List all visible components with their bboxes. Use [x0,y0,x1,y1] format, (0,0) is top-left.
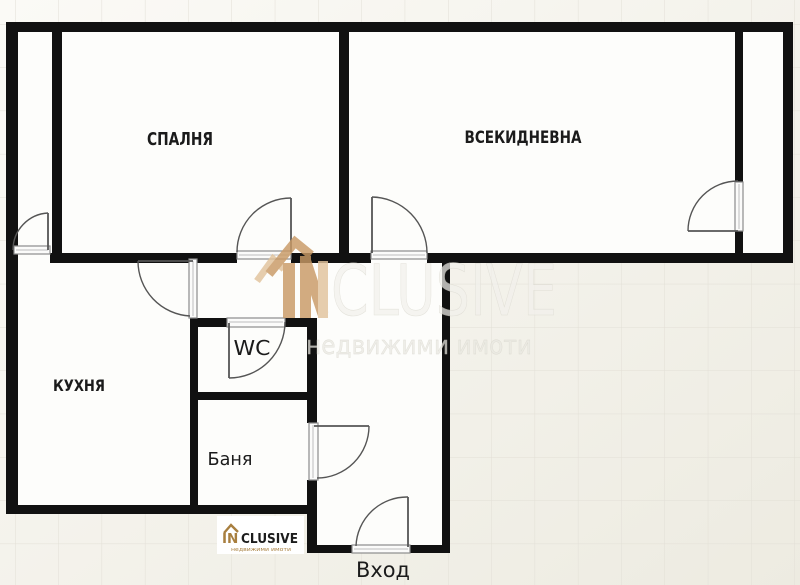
wall-hall-bottom-right [410,545,450,553]
wall-hall-bottom-left [307,545,352,553]
footer-logo: IN CLUSIVE недвижими имоти [217,516,304,554]
floor-plan-svg: CLUSIVE недвижими имоти СПАЛНЯ ВСЕКИДНЕВ… [0,0,800,585]
watermark-letter-i [283,263,295,318]
footer-logo-brand-rest: CLUSIVE [241,531,298,547]
wall-wc-top-left [190,318,227,327]
room-label-bathroom: Баня [208,449,253,470]
wall-bedroom-living-divider [339,30,349,256]
room-label-living-room: ВСЕКИДНЕВНА [465,128,583,148]
wall-wc-bath-divider [190,392,317,400]
wall-main-h-seg1 [6,253,14,263]
footer-logo-brand-prefix: IN [222,531,238,547]
wall-living-right-upper [735,30,743,182]
wall-right-outer [783,22,793,263]
wall-closet-divider [52,30,62,256]
room-label-bedroom: СПАЛНЯ [147,129,213,150]
floor-plan-canvas: CLUSIVE недвижими имоти СПАЛНЯ ВСЕКИДНЕВ… [0,0,800,585]
wall-kitchen-right [190,318,198,514]
footer-logo-subtitle: недвижими имоти [231,547,291,553]
wall-bottom-kitchen-bath [6,505,317,514]
wall-left [6,22,18,514]
wall-bath-right-lower [307,480,317,553]
wall-top [6,22,793,32]
room-label-wc: WC [234,336,271,360]
watermark-brand-text: CLUSIVE [331,250,557,332]
room-label-kitchen: КУХНЯ [53,376,105,395]
watermark-subtitle: недвижими имоти [306,331,532,361]
floor-top-row [8,24,791,261]
watermark-letter-n-right [318,261,328,318]
room-label-entrance: Вход [356,558,410,582]
